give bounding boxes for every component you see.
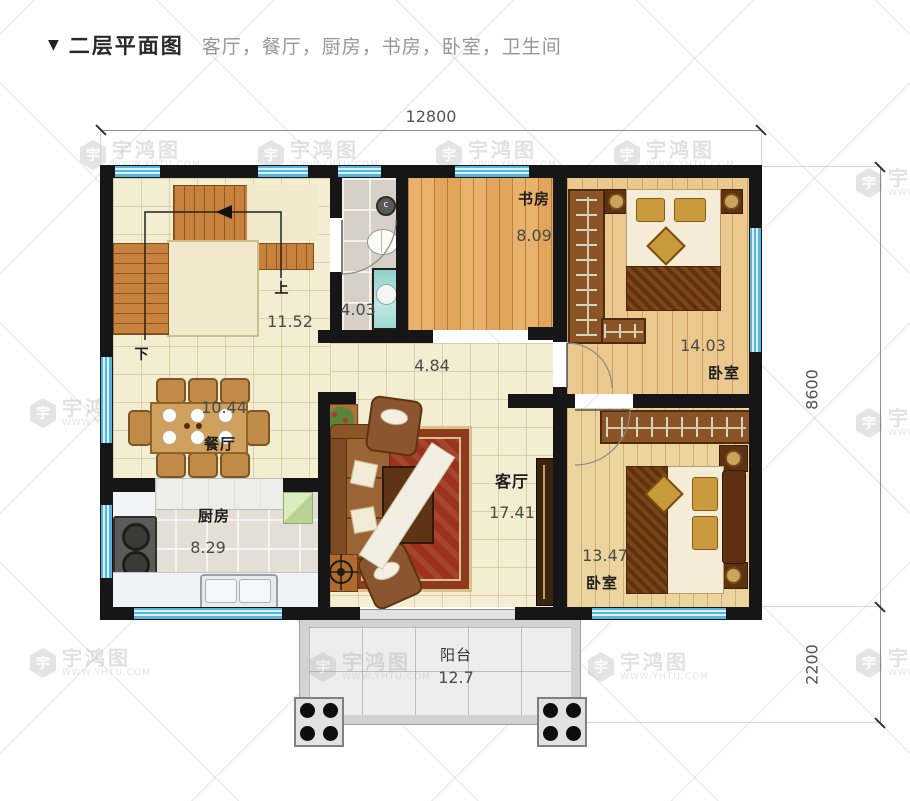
extension-line (762, 606, 880, 607)
wall-bathroom-study (396, 178, 408, 343)
watermark-logo-icon: 宇 (856, 648, 882, 678)
watermark-logo-icon: 宇 (856, 168, 882, 198)
stair-upper-landing (247, 185, 318, 240)
wardrobe-rod (604, 331, 643, 333)
watermark-logo-icon: 宇 (30, 648, 56, 678)
hallway-area-label: 4.84 (402, 356, 462, 375)
watermark: 宇宇鸿图WWW.YHTU.COM (856, 648, 910, 678)
pillow (636, 198, 665, 222)
bed-headboard (722, 470, 746, 564)
table-item (196, 423, 202, 429)
watermark: 宇宇鸿图WWW.YHTU.COM (30, 648, 151, 678)
extension-line (762, 166, 880, 167)
page-header: ▼ 二层平面图 客厅，餐厅，厨房，书房，卧室，卫生间 (48, 30, 562, 60)
watermark: 宇宇鸿图WWW.YHTU.COM (856, 408, 910, 438)
plate (162, 430, 177, 445)
wall-stub (330, 392, 356, 404)
dining-chair (156, 452, 186, 478)
triangle-marker-icon: ▼ (48, 37, 59, 53)
dimension-height-main-label: 8600 (803, 355, 822, 425)
wardrobe-rod (587, 197, 589, 336)
bed-blanket (626, 266, 721, 311)
dining-chair (156, 378, 186, 404)
window (115, 166, 160, 177)
wall-node (553, 387, 567, 408)
window (101, 357, 112, 443)
page-subtitle: 客厅，餐厅，厨房，书房，卧室，卫生间 (202, 32, 562, 59)
dimension-line-top (100, 130, 762, 131)
balcony-door-sill (360, 609, 515, 620)
balcony-name-label: 阳台 (426, 644, 486, 665)
stair-landing (167, 240, 259, 337)
page-title: 二层平面图 (69, 30, 184, 60)
watermark: 宇宇鸿图WWW.YHTU.COM (856, 168, 910, 198)
living-name-label: 客厅 (480, 468, 544, 492)
wall-bathroom-left-upper (330, 178, 342, 218)
stair-down-label: 下 (132, 344, 152, 364)
watermark-logo-icon: 宇 (588, 652, 614, 682)
stair-flight-left (113, 243, 169, 335)
plate (162, 408, 177, 423)
bedroom-bottom-name-label: 卧室 (572, 572, 632, 593)
dining-chair (188, 452, 218, 478)
toilet-lid-line (381, 229, 382, 253)
kitchen-sink (200, 574, 278, 610)
window (455, 166, 529, 177)
stair-flight-top (173, 185, 249, 242)
dining-chair (128, 410, 152, 446)
column-base (537, 697, 587, 747)
kitchen-name-label: 厨房 (184, 505, 244, 526)
wardrobe-rod (606, 427, 745, 429)
bedroom-bottom-area-label: 13.47 (570, 546, 640, 565)
wall-between-bedrooms-right (633, 394, 762, 408)
nightstand (719, 189, 743, 214)
pillow (674, 198, 706, 222)
window (750, 228, 761, 352)
column-base (294, 697, 344, 747)
window (338, 166, 381, 177)
watermark: 宇宇鸿图WWW.YHTU.COM (310, 652, 431, 682)
wardrobe-top-bedroom (568, 189, 605, 344)
window (134, 608, 282, 619)
window (101, 505, 112, 578)
stair-area-label: 11.52 (262, 312, 318, 331)
toilet (367, 229, 399, 255)
wall-living-bedroom (553, 408, 567, 607)
dimension-line-right (880, 167, 881, 724)
watermark-logo-icon: 宇 (30, 398, 56, 428)
table-item (184, 423, 190, 429)
wall-dining-kitchen-left (113, 478, 155, 492)
study-area-label: 8.09 (506, 226, 562, 245)
wall-dining-living (318, 392, 330, 607)
wall-dining-kitchen-right (283, 478, 318, 492)
pillow (692, 516, 718, 550)
watermark: 宇宇鸿图WWW.YHTU.COM (588, 652, 709, 682)
dining-chair (220, 452, 250, 478)
pillow (692, 477, 718, 511)
extension-line (761, 131, 762, 165)
balcony-area-label: 12.7 (424, 668, 488, 687)
shower-head-icon: c (376, 196, 396, 216)
kitchen-area-label: 8.29 (180, 538, 236, 557)
dining-name-label: 餐厅 (188, 433, 252, 454)
dining-area-label: 10.44 (192, 398, 256, 417)
bedroom-top-area-label: 14.03 (668, 336, 738, 355)
bathroom-area-label: 4.03 (330, 300, 386, 319)
armchair-top (364, 395, 423, 458)
dimension-width-label: 12800 (396, 107, 466, 126)
wardrobe-bottom-bedroom (600, 410, 752, 444)
cutting-board (283, 492, 313, 524)
watermark-logo-icon: 宇 (856, 408, 882, 438)
watermark-logo-icon: 宇 (310, 652, 336, 682)
window (592, 608, 726, 619)
bedroom-top-name-label: 卧室 (694, 362, 754, 383)
extension-line (100, 131, 101, 165)
study-name-label: 书房 (506, 188, 562, 209)
sofa-pillow (350, 460, 378, 488)
living-area-label: 17.41 (478, 503, 546, 522)
nightstand (604, 189, 628, 214)
wardrobe-arm-top-bedroom (601, 318, 646, 344)
extension-line (580, 722, 880, 723)
side-table (326, 554, 358, 592)
floor-plan-canvas: ▼ 二层平面图 客厅，餐厅，厨房，书房，卧室，卫生间 宇宇鸿图WWW.YHTU.… (0, 0, 910, 801)
stair-up-label: 上 (272, 278, 292, 298)
wall-under-bathroom (318, 330, 433, 343)
stair-flight-small (255, 243, 314, 270)
wall-exterior-top (100, 165, 762, 178)
window (258, 166, 308, 177)
dimension-height-balcony-label: 2200 (803, 630, 822, 700)
